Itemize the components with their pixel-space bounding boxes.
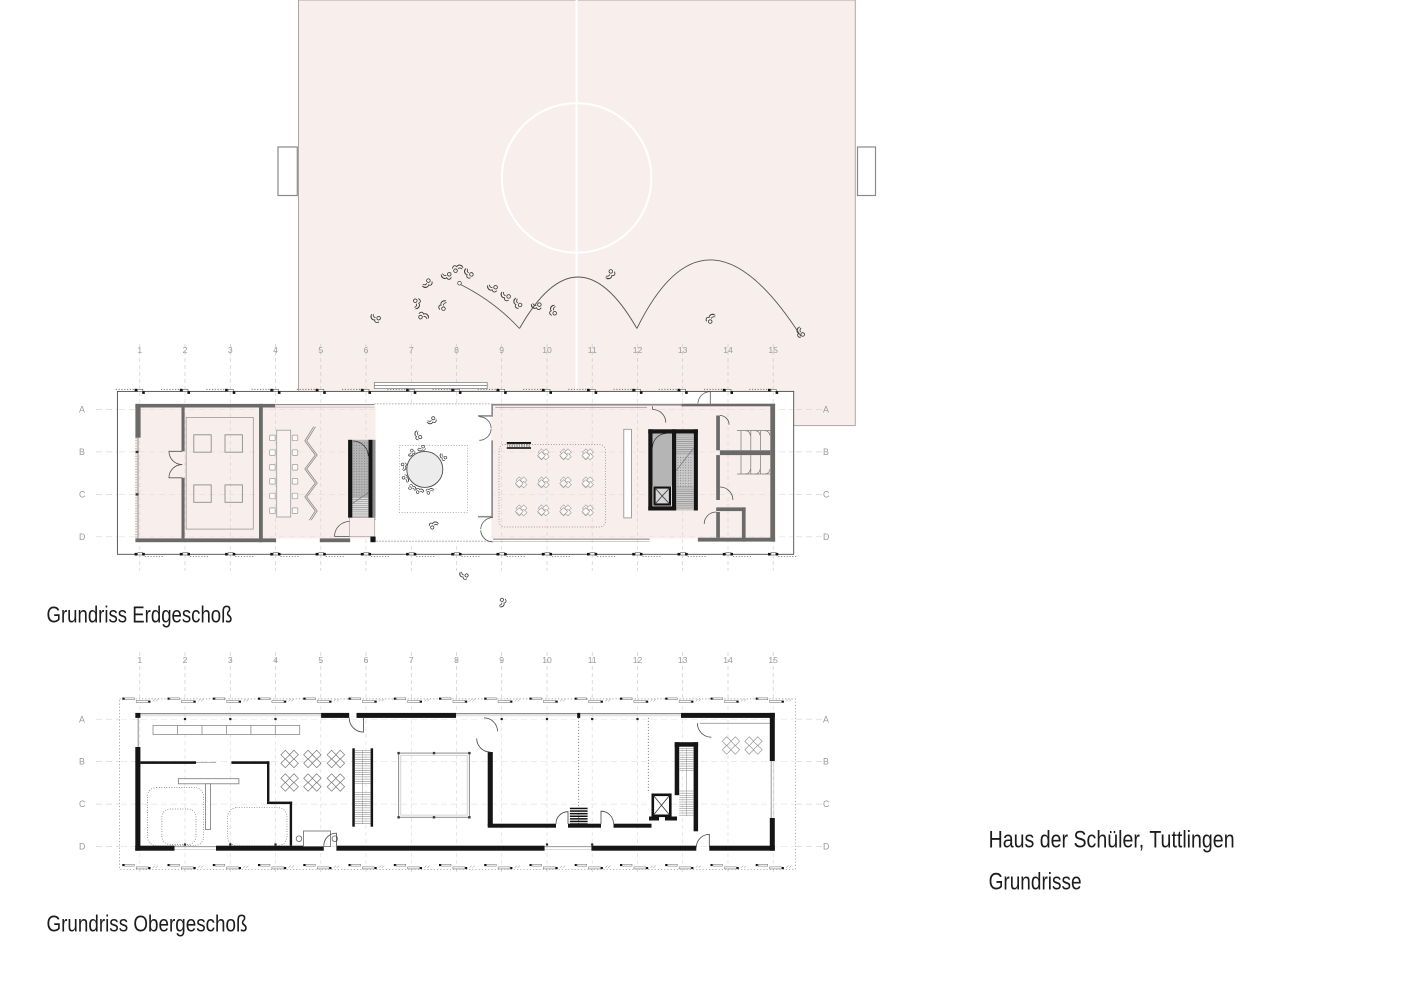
svg-text:15: 15: [768, 655, 778, 665]
svg-text:D: D: [823, 842, 829, 852]
svg-text:A: A: [79, 405, 85, 415]
svg-text:3: 3: [228, 345, 233, 355]
svg-text:10: 10: [542, 345, 552, 355]
svg-text:B: B: [79, 447, 85, 457]
svg-text:C: C: [823, 799, 830, 809]
svg-text:B: B: [79, 757, 85, 767]
svg-text:A: A: [823, 714, 829, 724]
svg-text:5: 5: [318, 345, 323, 355]
svg-text:12: 12: [633, 655, 643, 665]
svg-text:9: 9: [499, 655, 504, 665]
svg-text:10: 10: [542, 655, 552, 665]
svg-text:B: B: [823, 447, 829, 457]
svg-text:7: 7: [409, 345, 414, 355]
svg-text:13: 13: [678, 345, 688, 355]
svg-text:8: 8: [454, 655, 459, 665]
svg-text:14: 14: [723, 655, 733, 665]
svg-text:C: C: [79, 490, 86, 500]
svg-text:7: 7: [409, 655, 414, 665]
svg-text:2: 2: [183, 655, 188, 665]
svg-text:14: 14: [723, 345, 733, 355]
svg-text:A: A: [79, 714, 85, 724]
svg-text:13: 13: [678, 655, 688, 665]
svg-text:Haus der Schüler, Tuttlingen: Haus der Schüler, Tuttlingen: [989, 827, 1235, 854]
svg-text:Grundriss Obergeschoß: Grundriss Obergeschoß: [47, 911, 248, 937]
svg-text:Grundriss Erdgeschoß: Grundriss Erdgeschoß: [47, 601, 233, 627]
svg-text:15: 15: [768, 345, 778, 355]
svg-text:3: 3: [228, 655, 233, 665]
svg-text:6: 6: [364, 345, 369, 355]
svg-text:4: 4: [273, 345, 278, 355]
svg-text:5: 5: [318, 655, 323, 665]
svg-text:6: 6: [364, 655, 369, 665]
svg-text:1: 1: [137, 655, 142, 665]
svg-text:11: 11: [588, 345, 597, 355]
svg-text:D: D: [823, 532, 829, 542]
svg-text:B: B: [823, 757, 829, 767]
svg-text:12: 12: [633, 345, 643, 355]
svg-text:C: C: [823, 490, 830, 500]
svg-text:A: A: [823, 405, 829, 415]
svg-text:4: 4: [273, 655, 278, 665]
svg-text:9: 9: [499, 345, 504, 355]
svg-text:8: 8: [454, 345, 459, 355]
svg-text:C: C: [79, 799, 86, 809]
svg-text:1: 1: [137, 345, 142, 355]
svg-text:2: 2: [183, 345, 188, 355]
svg-text:D: D: [79, 842, 85, 852]
svg-text:Grundrisse: Grundrisse: [989, 868, 1082, 895]
svg-text:D: D: [79, 532, 85, 542]
svg-text:11: 11: [588, 655, 597, 665]
